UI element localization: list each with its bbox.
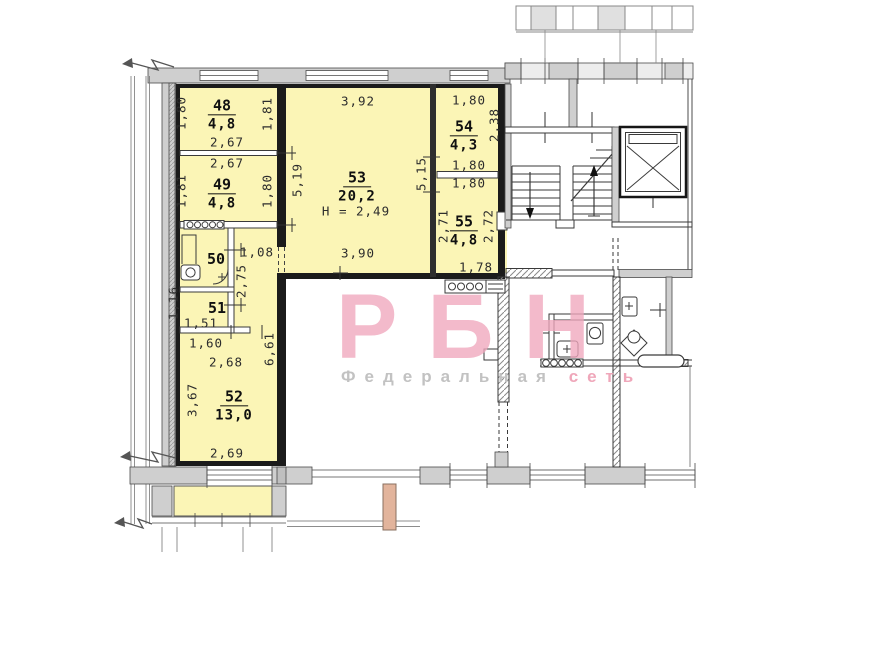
room-54-area: 4,3 [450,137,478,154]
room-53-number: 53 [343,169,371,187]
room-54-label: 54 4,3 [450,118,478,153]
dim-label: 5,15 [414,157,429,191]
dim-label: 6,61 [262,332,277,366]
room-49-area: 4,8 [208,195,236,212]
watermark-tagline: Федеральная сеть [341,367,642,387]
room-53-area: 20,2 [338,188,376,205]
room-49-label: 49 4,8 [208,176,236,211]
room-48-number: 48 [208,97,236,115]
room-55-number: 55 [450,213,478,231]
dim-label: 1,08 [240,245,274,260]
room-53-label: 53 20,2 [338,169,376,204]
dim-label: 2,75 [234,264,249,298]
pillar [383,484,396,530]
elevator-shaft [620,127,686,197]
dim-label: 1,16 [166,286,181,320]
dim-label: 2,72 [481,209,496,243]
dim-label: 3,67 [185,383,200,417]
dim-label: 2,69 [210,446,244,461]
porch-outline [516,6,693,63]
dim-label: 1,80 [174,96,189,130]
room-53-height-note: H = 2,49 [322,204,390,219]
dim-label: 2,67 [210,135,244,150]
room-52-area: 13,0 [215,407,253,424]
dim-label: 1,81 [174,174,189,208]
watermark-tagline-word1: Федеральная [341,367,555,386]
room-48-label: 48 4,8 [208,97,236,132]
dim-label: 2,67 [210,156,244,171]
dim-label: 1,78 [459,260,493,275]
room-51-number: 51 [208,299,226,317]
dim-label: 2,71 [436,209,451,243]
floor-plan-canvas: 48 4,8 49 4,8 50 51 52 13,0 53 20,2 H = … [0,0,870,652]
dim-label: 1,80 [452,176,486,191]
dim-label: 1,80 [260,174,275,208]
dim-label: 1,80 [452,158,486,173]
room-55-label: 55 4,8 [450,213,478,248]
room-54-number: 54 [450,118,478,136]
dim-label: 3,92 [341,94,375,109]
room-52-number: 52 [220,388,248,406]
dim-label: 2,68 [209,355,243,370]
watermark-tagline-word2: сеть [569,367,642,386]
dim-label: 5,19 [290,163,305,197]
dim-label: 1,80 [452,93,486,108]
watermark-logo: РБН [336,281,620,373]
room-48-area: 4,8 [208,116,236,133]
dim-label: 3,90 [341,246,375,261]
dim-label: 1,60 [189,336,223,351]
dim-label: 1,51 [184,316,218,331]
dim-label: 1,81 [260,97,275,131]
room-52-label: 52 13,0 [215,388,253,423]
room-49-number: 49 [208,176,236,194]
room-55-area: 4,8 [450,232,478,249]
dim-label: 2,38 [487,108,502,142]
room-50-number: 50 [207,250,225,268]
